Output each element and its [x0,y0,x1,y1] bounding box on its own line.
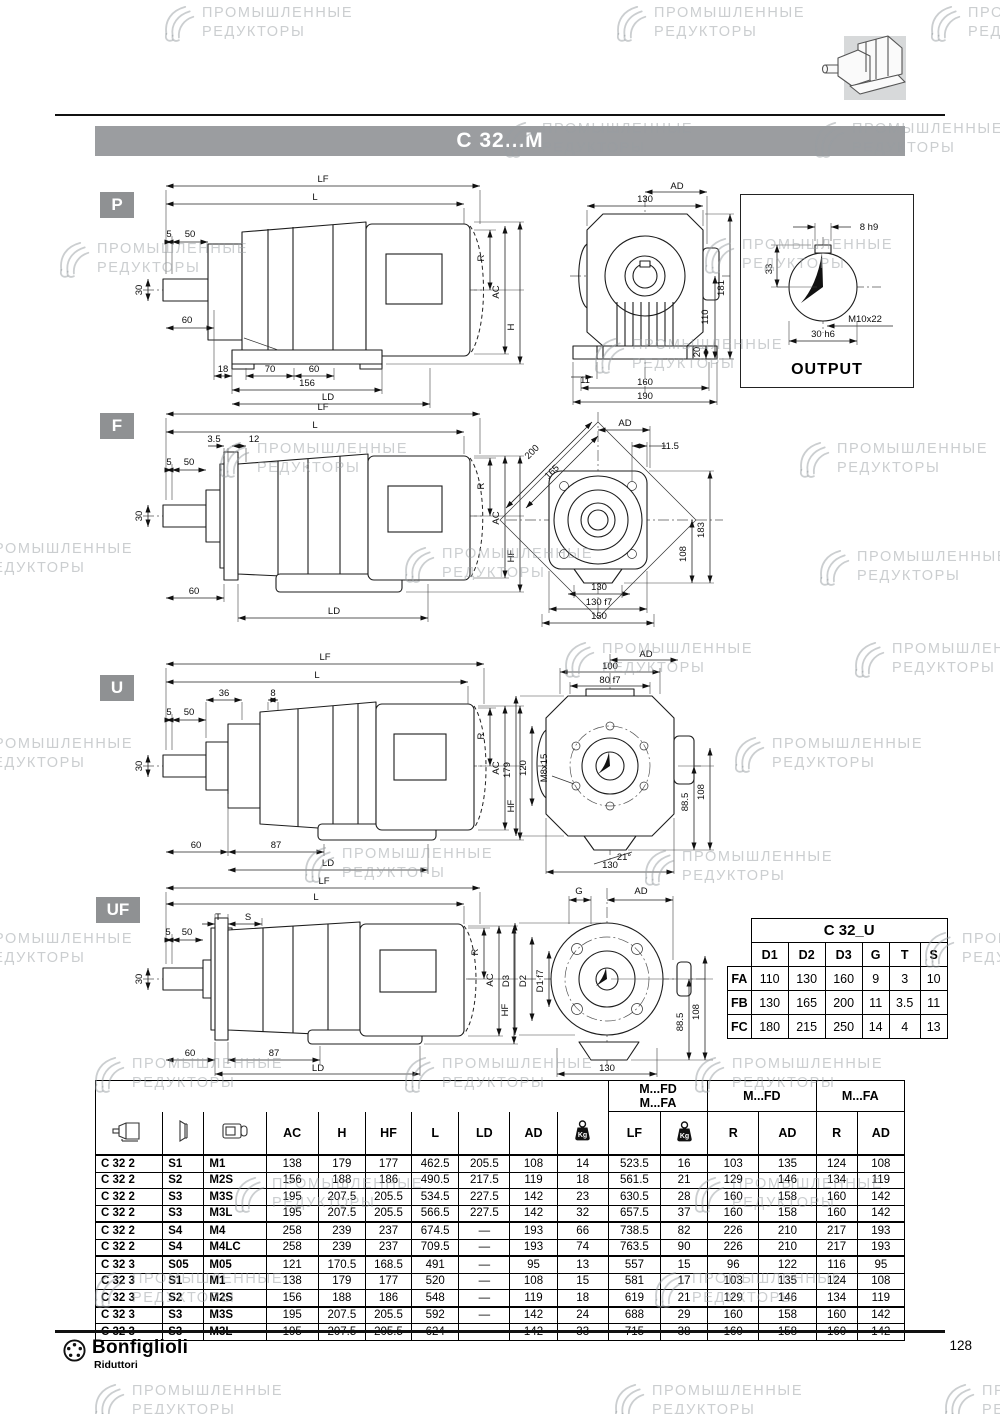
badge-label: P [111,195,122,215]
dim-label: 87 [269,1048,280,1059]
table-row: C 32 3S2M2S156188186548—1191861921129146… [96,1290,905,1307]
table-row: FA1101301609310 [728,967,948,991]
value-cell: 14 [862,1015,889,1039]
watermark-text: ПРОМЫШЛЕННЫЕРЕДУКТОРЫ [654,4,805,42]
column-header: LD [459,1112,510,1156]
row-id-cell: C 32 2 [96,1189,163,1206]
value-cell: 15 [557,1273,608,1290]
dim-label: 88.5 [680,793,691,812]
table-row: C 32 3S3M3S195207.5205.5592—142246882916… [96,1307,905,1324]
value-cell: 177 [365,1273,411,1290]
dim-label: R [476,482,487,489]
value-cell: 129 [708,1290,759,1307]
dim-label: R [476,732,487,739]
row-label: FA [728,967,752,991]
value-cell: 205.5 [365,1205,411,1222]
dim-label: 8 [270,688,275,699]
dim-label: 3.5 [207,434,220,445]
value-cell: 215 [788,1015,825,1039]
value-cell: 158 [759,1189,816,1206]
value-cell: 250 [825,1015,862,1039]
value-cell: 462.5 [412,1155,459,1172]
value-cell: 195 [266,1205,318,1222]
row-id-cell: M3S [204,1307,266,1324]
row-id-cell: S4 [163,1239,204,1256]
dim-label: 60 [185,1048,196,1059]
value-cell: 66 [557,1222,608,1239]
column-header: D1 [751,943,788,967]
value-cell: 186 [365,1290,411,1307]
value-cell: 135 [759,1155,816,1172]
watermark-text: ПРОМЫШЛЕННЫЕРЕДУКТОРЫ [837,440,988,478]
dim-label: 8 h9 [860,222,879,233]
watermark-text: ПРОМЫШЛЕННЫЕРЕДУКТОРЫ [982,1382,1000,1414]
watermark-logo-icon [940,1382,976,1414]
dim-label: L [312,420,317,431]
value-cell: 16 [661,1155,708,1172]
watermark: ПРОМЫШЛЕННЫЕРЕДУКТОРЫ [940,1382,1000,1414]
group-label: M...FD [639,1082,677,1096]
group-header-mfd: M...FD [708,1081,816,1112]
dim-label: 11 [580,375,590,386]
value-cell: 548 [412,1290,459,1307]
flange-icon [163,1112,204,1156]
row-id-cell: C 32 2 [96,1155,163,1172]
brand-name: Bonfiglioli [92,1338,188,1357]
value-cell: 165 [788,991,825,1015]
watermark-logo-icon [815,548,851,588]
value-cell: 207.5 [318,1189,365,1206]
value-cell: — [459,1290,510,1307]
value-cell: 82 [661,1222,708,1239]
value-cell: 103 [708,1273,759,1290]
gearmotor-image [818,28,914,108]
value-cell: 17 [661,1273,708,1290]
value-cell: 160 [825,967,862,991]
value-cell: 179 [318,1273,365,1290]
dim-label: 60 [309,364,320,375]
watermark: ПРОМЫШЛЕННЫЕРЕДУКТОРЫ [730,735,923,775]
value-cell: 217 [816,1239,857,1256]
value-cell: 160 [708,1307,759,1324]
value-cell: 180 [751,1015,788,1039]
value-cell: 534.5 [412,1189,459,1206]
value-cell: 217 [816,1222,857,1239]
dim-label: 70 [265,364,276,375]
value-cell: 239 [318,1239,365,1256]
watermark-text: ПРОМЫШЛЕННЫЕРЕДУКТОРЫ [968,4,1000,42]
row-id-cell: S3 [163,1189,204,1206]
dim-label: 181 [716,280,727,296]
dim-label: 20 [692,347,703,358]
dim-label: 60 [189,586,200,597]
dim-label: LF [319,652,330,663]
value-cell: — [459,1256,510,1273]
value-cell: 142 [510,1189,557,1206]
watermark: ПРОМЫШЛЕННЫЕРЕДУКТОРЫ [0,540,133,580]
dimensions-table: M...FD M...FA M...FD M...FA AC H HF [95,1080,905,1341]
table-row: C 32 3S05M05121170.5168.5491—95135571596… [96,1256,905,1273]
dim-label: AD [618,418,631,429]
row-id-cell: M2S [204,1172,266,1189]
table-row: C 32 2S3M3L195207.5205.5566.5227.5142326… [96,1205,905,1222]
watermark-text: ПРОМЫШЛЕННЫЕРЕДУКТОРЫ [652,1382,803,1414]
dim-label: R [470,948,481,955]
table-row: C 32_U [728,919,948,943]
table-row: C 32 2S2M2S156188186490.5217.511918561.5… [96,1172,905,1189]
dim-label: 183 [696,522,707,538]
dim-label: 30 [134,511,145,522]
p-side-drawing: LFL5503060187060156LDRACH [128,170,528,410]
value-cell: 23 [557,1189,608,1206]
product-photo [818,28,914,108]
value-cell: 13 [557,1256,608,1273]
dim-label: 179 [502,762,513,778]
watermark: ПРОМЫШЛЕННЫЕРЕДУКТОРЫ [0,930,133,970]
f-side-drawing: LFL3.5125503060LDRACHF [128,398,528,626]
column-header: D3 [825,943,862,967]
table-row: C 32 2S4M4LC258239237709.5—19374763.5902… [96,1239,905,1256]
f-rear-drawing: AD11.5200165183108130130 f7150 [498,402,733,630]
value-cell: 130 [751,991,788,1015]
row-id-cell: S3 [163,1307,204,1324]
row-id-cell: C 32 3 [96,1307,163,1324]
table-column-header-row: AC H HF L LD AD Kg LF Kg R AD R AD [96,1112,905,1156]
brand-subtitle: Riduttori [94,1359,188,1371]
c32u-table-body: FA1101301609310FB130165200113.511FC18021… [728,967,948,1039]
value-cell: 763.5 [608,1239,660,1256]
column-header: AD [857,1112,904,1156]
gearbox-icon [96,1112,163,1156]
watermark-logo-icon [730,735,766,775]
value-cell: 158 [759,1205,816,1222]
value-cell: 18 [557,1290,608,1307]
value-cell: 142 [857,1307,904,1324]
value-cell: 110 [751,967,788,991]
value-cell: 90 [661,1239,708,1256]
output-shaft-drawing: 8 h933M10x2230 h6 [741,195,911,353]
watermark-text: ПРОМЫШЛЕННЫЕРЕДУКТОРЫ [0,735,133,773]
dim-label: M8x15 [539,754,550,783]
watermark-logo-icon [610,1382,646,1414]
value-cell: 3.5 [889,991,920,1015]
value-cell: 738.5 [608,1222,660,1239]
p-rear-drawing: AD1301811102011160190 [545,180,745,408]
row-id-cell: M1 [204,1155,266,1172]
dim-label: 12 [249,434,260,445]
dim-label: LD [312,1063,324,1074]
value-cell: 193 [510,1222,557,1239]
spacer-cell [728,943,752,967]
value-cell: 95 [510,1256,557,1273]
value-cell: 210 [759,1239,816,1256]
value-cell: 124 [816,1273,857,1290]
value-cell: 177 [365,1155,411,1172]
brand-logo: Bonfiglioli Riduttori [62,1338,188,1371]
dim-label: 108 [678,546,689,562]
value-cell: 160 [816,1205,857,1222]
row-id-cell: M3S [204,1189,266,1206]
row-id-cell: C 32 3 [96,1273,163,1290]
dim-label: 130 [637,194,653,205]
value-cell: 158 [759,1307,816,1324]
value-cell: — [459,1307,510,1324]
value-cell: 630.5 [608,1189,660,1206]
dim-label: 100 [602,661,618,672]
dim-label: 60 [191,840,202,851]
row-id-cell: M3L [204,1205,266,1222]
row-id-cell: S1 [163,1273,204,1290]
column-header: L [412,1112,459,1156]
row-id-cell: C 32 2 [96,1222,163,1239]
row-id-cell: S2 [163,1290,204,1307]
watermark-logo-icon [90,1382,126,1414]
dim-label: 30 [134,974,145,985]
value-cell: 142 [857,1205,904,1222]
dim-label: S [245,912,251,923]
value-cell: 11 [920,991,947,1015]
dim-label: 80 f7 [599,675,620,686]
value-cell: 160 [816,1307,857,1324]
dim-label: 60 [182,315,193,326]
value-cell: 168.5 [365,1256,411,1273]
value-cell: 657.5 [608,1205,660,1222]
value-cell: 709.5 [412,1239,459,1256]
value-cell: 226 [708,1239,759,1256]
value-cell: 258 [266,1222,318,1239]
row-id-cell: S1 [163,1155,204,1172]
column-header: R [816,1112,857,1156]
value-cell: 14 [557,1155,608,1172]
u-side-drawing: LFL368550306087LDRACHF [128,648,528,876]
value-cell: 108 [857,1155,904,1172]
value-cell: 96 [708,1256,759,1273]
dim-label: LF [317,174,328,185]
value-cell: 21 [661,1290,708,1307]
column-header: G [862,943,889,967]
value-cell: 13 [920,1015,947,1039]
watermark-text: ПРОМЫШЛЕННЫЕРЕДУКТОРЫ [0,540,133,578]
value-cell: 523.5 [608,1155,660,1172]
table-row: FB130165200113.511 [728,991,948,1015]
dim-label: 50 [185,229,196,240]
dim-label: D1 f7 [535,970,546,993]
watermark-text: ПРОМЫШЛЕННЫЕРЕДУКТОРЫ [132,1382,283,1414]
dim-label: 30 h6 [811,329,835,340]
value-cell: 581 [608,1273,660,1290]
value-cell: 210 [759,1222,816,1239]
value-cell: — [459,1239,510,1256]
value-cell: 557 [608,1256,660,1273]
dim-label: AD [634,886,647,897]
value-cell: 490.5 [412,1172,459,1189]
column-header: S [920,943,947,967]
c32u-table: C 32_U D1 D2 D3 G T S FA1101301609310FB1… [727,918,948,1039]
column-header: HF [365,1112,411,1156]
title-bar: C 32...M [95,126,905,156]
value-cell: 24 [557,1307,608,1324]
value-cell: 186 [365,1172,411,1189]
value-cell: 146 [759,1290,816,1307]
bonfiglioli-logo [62,1338,87,1363]
value-cell: 179 [318,1155,365,1172]
svg-text:Kg: Kg [679,1133,688,1140]
value-cell: 142 [510,1205,557,1222]
value-cell: 160 [708,1205,759,1222]
row-id-cell: M2S [204,1290,266,1307]
row-id-cell: M4LC [204,1239,266,1256]
dim-label: 36 [219,688,230,699]
value-cell: 160 [816,1189,857,1206]
watermark: ПРОМЫШЛЕННЫЕРЕДУКТОРЫ [0,735,133,775]
badge-label: U [111,678,123,698]
row-id-cell: M1 [204,1273,266,1290]
watermark-logo-icon [612,4,648,44]
page-title: C 32...M [456,129,543,153]
table-row: C 32 2S3M3S195207.5205.5534.5227.5142236… [96,1189,905,1206]
column-header: D2 [788,943,825,967]
group-header-empty [96,1081,609,1112]
value-cell: 121 [266,1256,318,1273]
value-cell: 592 [412,1307,459,1324]
dim-label: 130 [591,582,607,593]
value-cell: 520 [412,1273,459,1290]
value-cell: 205.5 [365,1307,411,1324]
row-id-cell: S05 [163,1256,204,1273]
table-row: FC18021525014413 [728,1015,948,1039]
row-id-cell: S2 [163,1172,204,1189]
dim-label: 200 [523,443,542,462]
dim-label: 130 [602,860,618,871]
value-cell: 195 [266,1189,318,1206]
dim-label: 30 [134,761,145,772]
value-cell: 9 [862,967,889,991]
value-cell: 619 [608,1290,660,1307]
dim-label: 160 [637,377,653,388]
dim-label: 120 [518,760,529,776]
value-cell: 193 [857,1239,904,1256]
value-cell: — [459,1222,510,1239]
output-detail-box: 8 h933M10x2230 h6 OUTPUT [740,194,914,388]
dim-label: 18 [218,364,229,375]
value-cell: 237 [365,1222,411,1239]
row-id-cell: C 32 3 [96,1256,163,1273]
value-cell: 108 [510,1155,557,1172]
value-cell: 237 [365,1239,411,1256]
value-cell: 200 [825,991,862,1015]
value-cell: 122 [759,1256,816,1273]
dim-label: LF [318,876,329,887]
value-cell: 688 [608,1307,660,1324]
column-header: T [889,943,920,967]
value-cell: — [459,1273,510,1290]
watermark-logo-icon [795,440,831,480]
value-cell: 561.5 [608,1172,660,1189]
value-cell: 491 [412,1256,459,1273]
value-cell: 138 [266,1155,318,1172]
value-cell: 205.5 [459,1155,510,1172]
output-caption: OUTPUT [741,361,913,379]
value-cell: 134 [816,1290,857,1307]
watermark: ПРОМЫШЛЕННЫЕРЕДУКТОРЫ [160,4,353,44]
value-cell: 138 [266,1273,318,1290]
column-header: AD [510,1112,557,1156]
value-cell: 258 [266,1239,318,1256]
value-cell: 124 [816,1155,857,1172]
value-cell: 74 [557,1239,608,1256]
value-cell: 116 [816,1256,857,1273]
value-cell: 227.5 [459,1205,510,1222]
watermark-text: ПРОМЫШЛЕННЫЕРЕДУКТОРЫ [962,930,1000,968]
page-number: 128 [912,1338,972,1353]
group-header-mfa: M...FA [816,1081,904,1112]
kg-icon: Kg [661,1112,708,1156]
value-cell: 108 [857,1273,904,1290]
row-id-cell: S3 [163,1205,204,1222]
kg-icon: Kg [557,1112,608,1156]
dim-label: 50 [184,457,195,468]
dim-label: L [312,192,317,203]
watermark-text: ПРОМЫШЛЕННЫЕРЕДУКТОРЫ [772,735,923,773]
value-cell: 193 [510,1239,557,1256]
table-row: C 32 2S1M1138179177462.5205.510814523.51… [96,1155,905,1172]
column-header: LF [608,1112,660,1156]
value-cell: 227.5 [459,1189,510,1206]
dim-label: 50 [184,707,195,718]
dim-label: AC [491,285,502,298]
row-id-cell: C 32 2 [96,1239,163,1256]
value-cell: 170.5 [318,1256,365,1273]
column-header: AD [759,1112,816,1156]
group-header-mfd-mfa: M...FD M...FA [608,1081,707,1112]
value-cell: 160 [708,1189,759,1206]
dim-label: R [476,254,487,261]
svg-text:Kg: Kg [578,1132,587,1139]
dim-label: 130 f7 [586,597,612,608]
dim-label: LD [328,606,340,617]
watermark: ПРОМЫШЛЕННЫЕРЕДУКТОРЫ [850,640,1000,680]
table-row: C 32 2S4M4258239237674.5—19366738.582226… [96,1222,905,1239]
row-label: FB [728,991,752,1015]
dim-label: 5 [166,457,171,468]
value-cell: 146 [759,1172,816,1189]
dim-label: H [506,323,517,330]
value-cell: 37 [661,1205,708,1222]
dim-label: LD [322,858,334,869]
watermark-logo-icon [160,4,196,44]
u-rear-drawing: AD10080 f7179120M8x1588.510821°130 [498,650,723,875]
value-cell: 674.5 [412,1222,459,1239]
dim-label: 50 [182,927,193,938]
value-cell: 135 [759,1273,816,1290]
row-id-cell: C 32 2 [96,1172,163,1189]
catalog-page: ПРОМЫШЛЕННЫЕРЕДУКТОРЫПРОМЫШЛЕННЫЕРЕДУКТО… [0,0,1000,1414]
column-header: H [318,1112,365,1156]
row-id-cell: S4 [163,1222,204,1239]
dim-label: G [575,886,582,897]
dim-label: 150 [591,611,607,622]
value-cell: 10 [920,967,947,991]
value-cell: 15 [661,1256,708,1273]
watermark-text: ПРОМЫШЛЕННЫЕРЕДУКТОРЫ [892,640,1000,678]
value-cell: 188 [318,1290,365,1307]
row-label: FC [728,1015,752,1039]
uf-side-drawing: LFLTS550306087LDRACHF [128,874,528,1079]
dim-label: M10x22 [848,314,882,325]
value-cell: 119 [857,1172,904,1189]
value-cell: 3 [889,967,920,991]
c32u-title: C 32_U [751,919,947,943]
